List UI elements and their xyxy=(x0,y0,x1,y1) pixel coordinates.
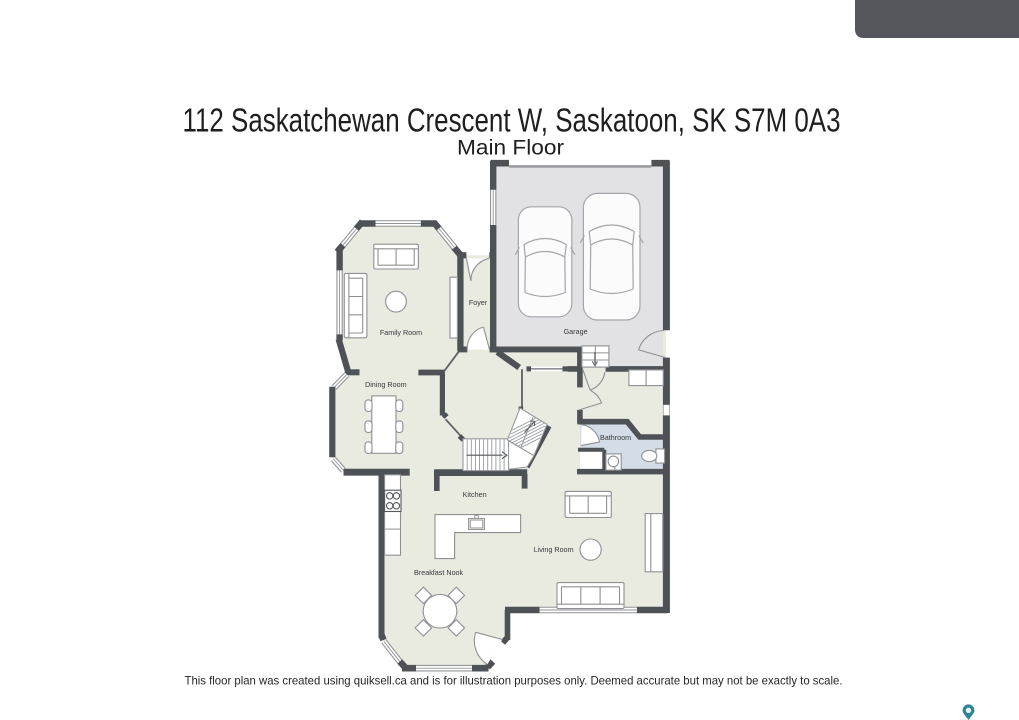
svg-text:Bathroom: Bathroom xyxy=(600,433,631,442)
svg-text:Breakfast Nook: Breakfast Nook xyxy=(414,568,464,577)
svg-text:Dining Room: Dining Room xyxy=(365,380,407,389)
svg-text:Garage: Garage xyxy=(564,327,588,336)
svg-text:Main Floor: Main Floor xyxy=(457,136,564,160)
svg-text:This floor plan was created us: This floor plan was created using quikse… xyxy=(185,674,843,688)
svg-text:Kitchen: Kitchen xyxy=(463,490,487,499)
svg-text:112 Saskatchewan Crescent W, S: 112 Saskatchewan Crescent W, Saskatoon, … xyxy=(183,103,841,140)
svg-text:Foyer: Foyer xyxy=(469,298,488,307)
svg-text:Family Room: Family Room xyxy=(380,328,422,337)
svg-text:Living Room: Living Room xyxy=(534,545,574,554)
